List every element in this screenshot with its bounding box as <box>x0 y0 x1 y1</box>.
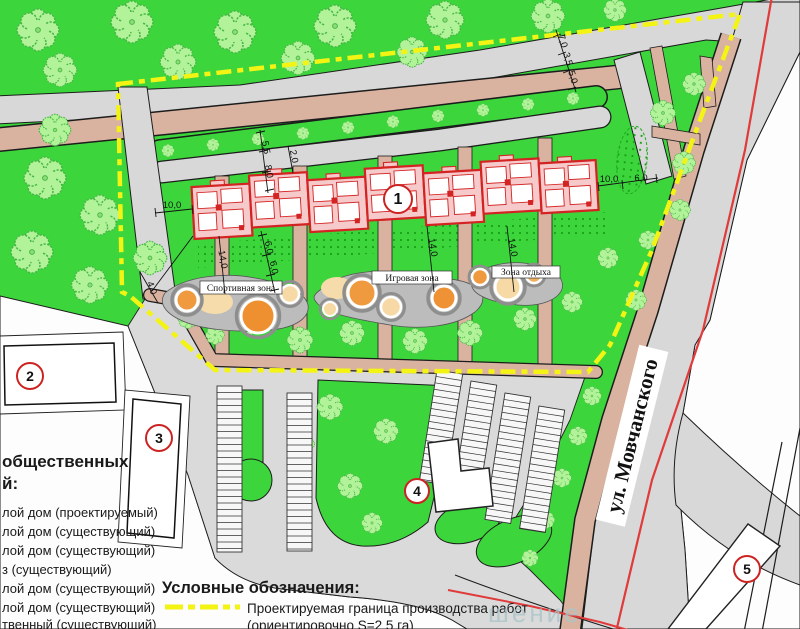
explication-item: лой дом (существующий) <box>2 600 155 615</box>
explication-item: лой дом (существующий) <box>2 543 155 558</box>
parking-strip[interactable] <box>217 386 242 552</box>
explication-item: з (существующий) <box>2 562 112 577</box>
legend-title: Условные обозначения: <box>162 579 360 597</box>
dimension-label: 6,0 <box>634 173 647 184</box>
zone-label-sport: Спортивная зона <box>207 284 276 294</box>
zone-label-rest: Зона отдыха <box>501 268 552 278</box>
dimension-label: 10,0 <box>163 200 182 211</box>
zone-label-play: Игровая зона <box>385 274 439 284</box>
dimension-label: 6,0 <box>262 240 275 255</box>
dimension-label: 5,5 <box>259 140 272 155</box>
dimension-label: 10,0 <box>600 174 619 185</box>
dimension-label: 2,0 <box>287 149 300 164</box>
site-plan-page: Спортивная зона Игровая зона Зона отдыха… <box>0 0 800 629</box>
watermark-text: шение <box>488 598 582 628</box>
dimension-label: 8,0 <box>262 164 275 179</box>
explication-title-2: й: <box>2 474 18 493</box>
dimension-label: 6,0 <box>267 260 280 275</box>
lawn-stem <box>239 390 263 462</box>
building-1-number: 1 <box>394 191 403 208</box>
building-2-number: 2 <box>26 368 34 384</box>
building-5-number: 5 <box>743 561 751 577</box>
explication-item: лой дом (существующий) <box>2 581 155 596</box>
site-plan-svg: Спортивная зона Игровая зона Зона отдыха… <box>0 0 800 629</box>
explication-title-1: общественных <box>2 452 129 471</box>
explication-item: лой дом (проектируемый) <box>2 505 158 520</box>
legend-item-line1: Проектируемая граница производства работ <box>247 601 528 616</box>
explication-item: лой дом (существующий) <box>2 524 155 539</box>
parking-strip[interactable] <box>287 393 312 551</box>
explication-item: твенный (существующий) <box>2 617 157 629</box>
building-4-number: 4 <box>413 483 421 499</box>
building-3-number: 3 <box>155 430 163 446</box>
legend-item-line2: (ориентировочно S=2,5 га) <box>247 618 414 629</box>
